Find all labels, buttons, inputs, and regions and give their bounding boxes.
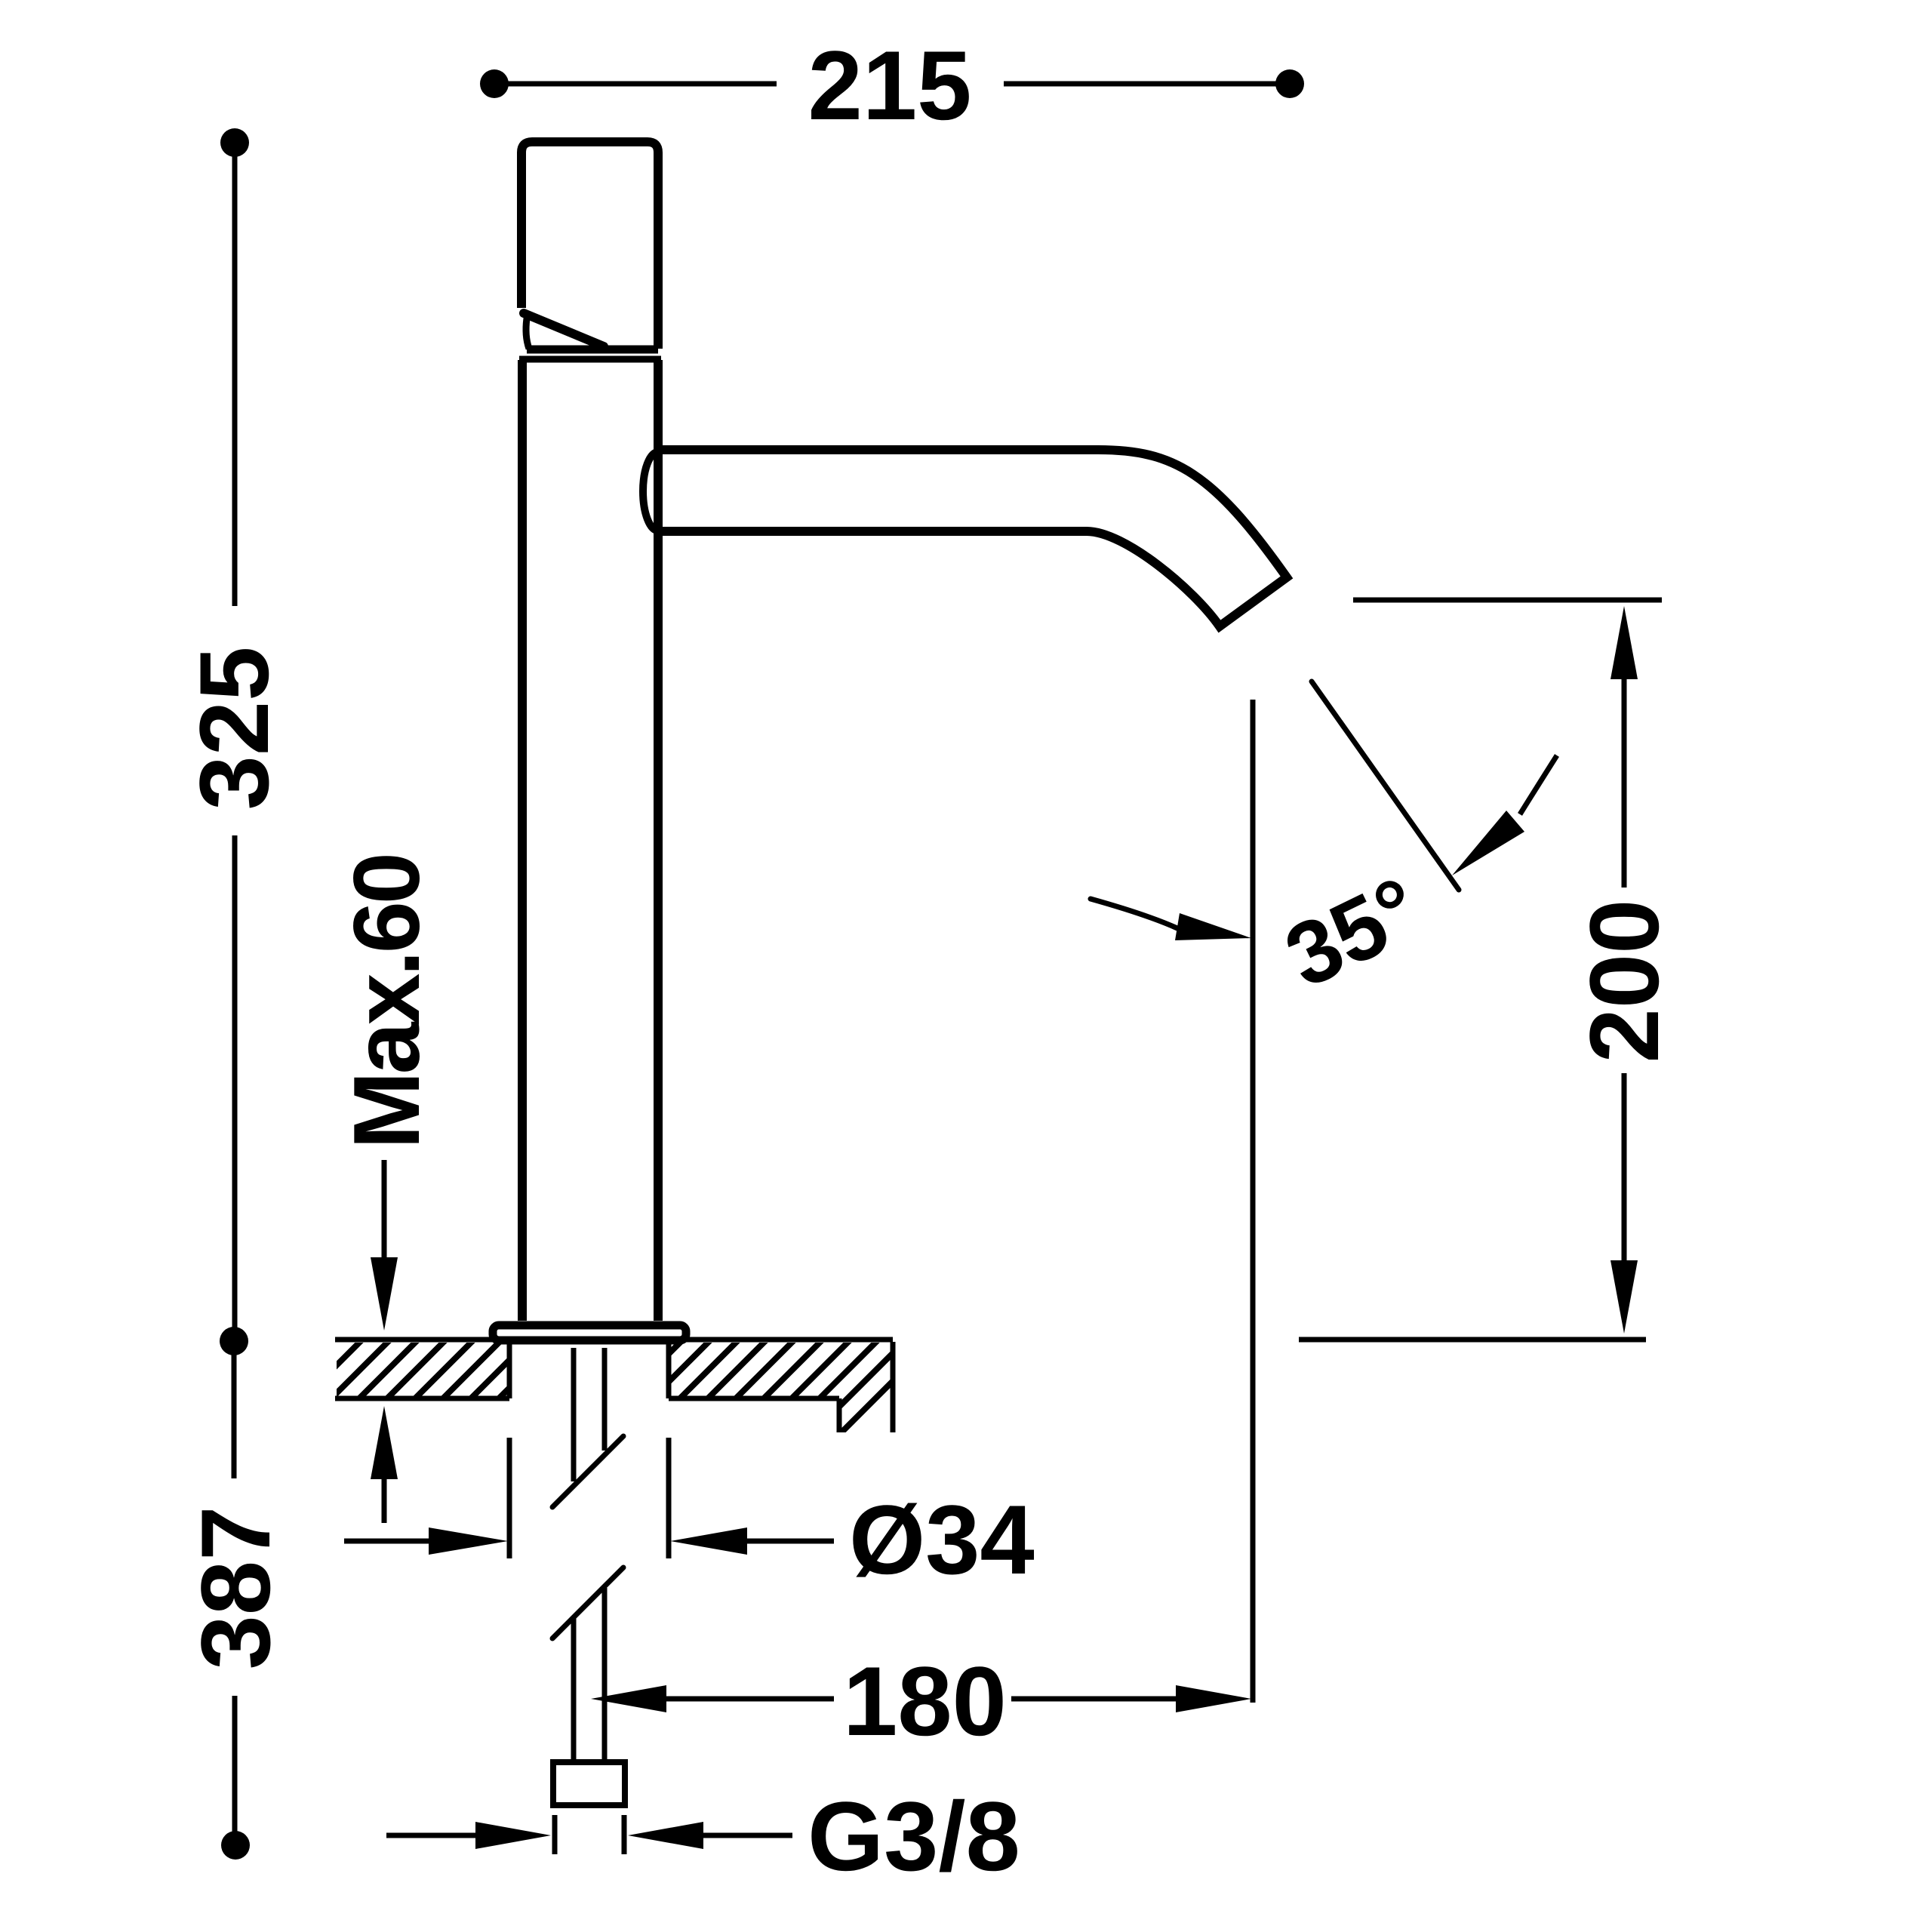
svg-text:35°: 35°: [1271, 858, 1435, 1007]
svg-text:Ø34: Ø34: [849, 1484, 1035, 1595]
svg-text:325: 325: [179, 647, 289, 811]
svg-text:Max.60: Max.60: [335, 855, 439, 1149]
svg-text:200: 200: [1569, 900, 1679, 1063]
svg-text:387: 387: [180, 1506, 291, 1670]
svg-text:215: 215: [808, 30, 972, 140]
svg-text:G3/8: G3/8: [808, 1781, 1020, 1891]
svg-text:180: 180: [843, 1646, 1007, 1756]
